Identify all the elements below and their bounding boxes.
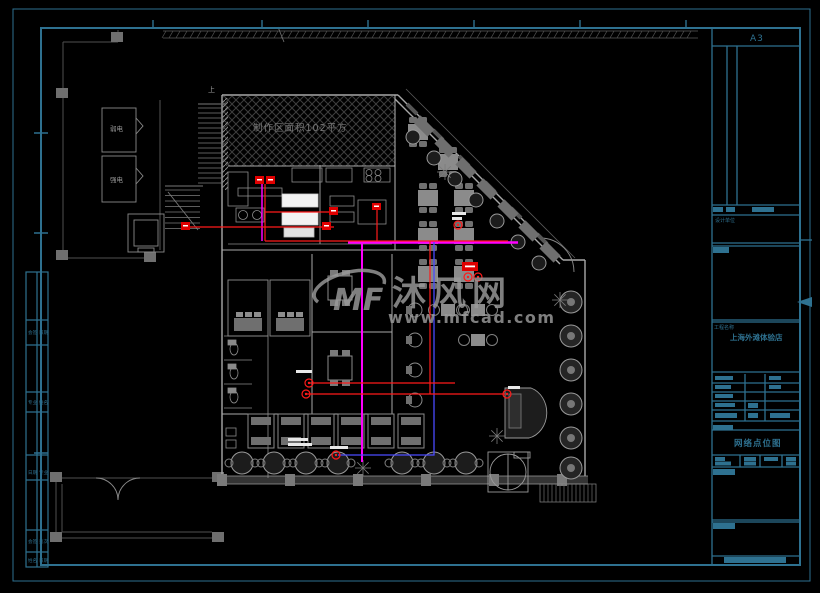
table-4seat [418, 183, 438, 213]
canopy-tick [190, 31, 194, 38]
booth [398, 414, 424, 448]
column [353, 474, 363, 486]
canopy-tick [680, 31, 684, 38]
canopy-tick [218, 31, 222, 38]
canopy-tick [617, 31, 621, 38]
chair [429, 183, 437, 189]
canopy-tick [603, 31, 607, 38]
canopy-tick [372, 31, 376, 38]
canopy-tick [309, 31, 313, 38]
table-center [567, 366, 575, 374]
strip-cell-label: 姓名 [28, 557, 37, 564]
canopy-tick [526, 31, 530, 38]
canopy-tick [393, 31, 397, 38]
booth [248, 414, 274, 448]
canopy-tick [183, 31, 187, 38]
strip-cell-label: 日期 [39, 558, 48, 564]
canopy-tick [659, 31, 663, 38]
entry-steps [540, 484, 596, 502]
plant-leaf [554, 300, 560, 306]
room-table [328, 356, 352, 380]
table [427, 151, 441, 165]
chair [429, 207, 437, 213]
plant-leaf [491, 430, 497, 436]
canopy-tick [239, 31, 243, 38]
plant-leaf [363, 468, 369, 474]
chair [465, 221, 473, 227]
strip-cell-label: 页次 [39, 538, 48, 545]
drawing-title: 网络点位图 [734, 438, 782, 449]
booth [368, 414, 394, 448]
booth [338, 414, 364, 448]
title-block-filled-cells [713, 207, 796, 563]
booth-seat [341, 417, 361, 425]
chair [419, 245, 427, 251]
diagonal-booth [532, 241, 561, 270]
plant-leaf [497, 430, 503, 436]
canopy-tick [484, 31, 488, 38]
strip-cell-label: 会签 [28, 329, 37, 336]
canopy-tick [260, 31, 264, 38]
canopy-tick [225, 31, 229, 38]
double-door-arc [96, 478, 140, 500]
canopy-tick [421, 31, 425, 38]
booth-seat [281, 417, 301, 425]
table [471, 334, 485, 346]
canopy-tick [568, 31, 572, 38]
table [469, 193, 483, 207]
canopy-tick [582, 31, 586, 38]
stairs-up-label: 上 [208, 85, 215, 94]
marker-dot [457, 224, 459, 226]
chair [465, 245, 473, 251]
chair [455, 245, 463, 251]
chair [419, 183, 427, 189]
booth-seat [311, 437, 331, 445]
chair [330, 350, 338, 356]
booth-seat [251, 437, 271, 445]
watermark-logo-text: MF [333, 283, 384, 318]
wall-pocket [406, 103, 419, 116]
canopy-tick [631, 31, 635, 38]
table [231, 452, 253, 474]
booth-seat [371, 417, 391, 425]
canopy-tick [498, 31, 502, 38]
counter-seat [406, 393, 422, 407]
canopy-tick [624, 31, 628, 38]
canopy-tick [316, 31, 320, 38]
canopy-tick [463, 31, 467, 38]
round-table [449, 452, 483, 474]
canopy-tick [687, 31, 691, 38]
table [532, 256, 546, 270]
watermark-url: www.mfcad.com [388, 308, 556, 327]
kitchen-equipment [228, 168, 392, 244]
canopy-tick [470, 31, 474, 38]
chair [419, 207, 427, 213]
table-center [567, 298, 575, 306]
canopy-tick [253, 31, 257, 38]
title-block [712, 28, 812, 565]
round-table [560, 359, 582, 381]
table [406, 130, 420, 144]
canopy-tick [323, 31, 327, 38]
canopy-tick [330, 31, 334, 38]
canopy-tick [561, 31, 565, 38]
canopy-tick [442, 31, 446, 38]
chair [487, 335, 498, 346]
canopy-tick [519, 31, 523, 38]
canopy-tick [505, 31, 509, 38]
columns-exterior [50, 32, 224, 542]
booth-seat [401, 417, 421, 425]
plant [355, 460, 371, 476]
canopy-tick [295, 31, 299, 38]
room-weak-power-label: 弱电 [110, 124, 124, 133]
canopy-tick [246, 31, 250, 38]
canopy-tick [414, 31, 418, 38]
project-name-label: 工程名称 [714, 324, 734, 331]
chair [342, 350, 350, 356]
canopy-tick [652, 31, 656, 38]
chair [465, 207, 473, 213]
canopy-tick [169, 31, 173, 38]
plant-leaf [357, 462, 363, 468]
round-table [560, 325, 582, 347]
round-table [560, 291, 582, 313]
grand-piano [505, 388, 547, 458]
canopy-tick [400, 31, 404, 38]
seat [406, 366, 412, 374]
booth [308, 414, 334, 448]
canopy-tick [428, 31, 432, 38]
chair [429, 221, 437, 227]
canopy-tick [344, 31, 348, 38]
column [217, 474, 227, 486]
canopy-tick [302, 31, 306, 38]
canopy-tick [267, 31, 271, 38]
canopy-tick [540, 31, 544, 38]
canopy-tick [575, 31, 579, 38]
table [263, 452, 285, 474]
chair [419, 141, 427, 147]
canopy-tick [435, 31, 439, 38]
canopy-tick [547, 31, 551, 38]
plant [437, 164, 453, 180]
canopy-tick [673, 31, 677, 38]
canopy-tick [379, 31, 383, 38]
table [418, 190, 438, 206]
chair [465, 183, 473, 189]
table-center [567, 400, 575, 408]
plant-leaf [491, 436, 497, 442]
canopy-tick [533, 31, 537, 38]
strip-cell-label: 专业 [39, 469, 48, 476]
column [421, 474, 431, 486]
seat [406, 396, 412, 404]
canopy-tick [197, 31, 201, 38]
sheet-size-label: A3 [750, 34, 764, 44]
canopy-tick [456, 31, 460, 38]
canopy-tick [176, 31, 180, 38]
counter-seat [406, 363, 422, 377]
booth [278, 414, 304, 448]
round-table [560, 457, 582, 479]
canopy-tick [288, 31, 292, 38]
column [285, 474, 295, 486]
canopy-tick [337, 31, 341, 38]
annex [102, 98, 228, 252]
diagonal-booth [511, 220, 540, 249]
canopy-tick [232, 31, 236, 38]
site-outline [56, 30, 218, 538]
round-table [289, 452, 323, 474]
canopy-tick [449, 31, 453, 38]
table-center [567, 464, 575, 472]
canopy-tick [162, 31, 166, 38]
canopy-tick [386, 31, 390, 38]
canopy-tick [589, 31, 593, 38]
left-strip-labels: 会签 日期 专业 姓名 日期 专业 会签 页次 姓名 日期 [28, 329, 48, 564]
round-table [225, 452, 259, 474]
canopy-tick [358, 31, 362, 38]
canopy-tick [351, 31, 355, 38]
chair [455, 259, 463, 265]
chair [419, 259, 427, 265]
canopy-tick [477, 31, 481, 38]
canopy-tick [512, 31, 516, 38]
canopy-tick [666, 31, 670, 38]
strip-cell-label: 会签 [28, 538, 37, 545]
counter-seat [406, 333, 422, 347]
round-table [257, 452, 291, 474]
canopy-tick [491, 31, 495, 38]
canopy-tick [274, 31, 278, 38]
diagonal-booth [490, 199, 519, 228]
marker-dot [305, 393, 307, 395]
table [490, 214, 504, 228]
canopy-tick [610, 31, 614, 38]
strip-cell-label: 专业 [28, 399, 37, 406]
canopy-tick [596, 31, 600, 38]
project-name: 上海外滩体验店 [730, 332, 783, 342]
table [448, 172, 462, 186]
marker-dot [506, 393, 508, 395]
booth-seat [251, 417, 271, 425]
booth-seat [401, 437, 421, 445]
round-table [560, 427, 582, 449]
booth-seat [311, 417, 331, 425]
drawing-sheet: 制作区面积102平方 [0, 0, 820, 593]
plant-leaf [357, 468, 363, 474]
round-table [560, 393, 582, 415]
canopy-tick [645, 31, 649, 38]
plant [552, 292, 568, 308]
bottom-wall [217, 474, 588, 486]
plant-leaf [363, 462, 369, 468]
chair [459, 335, 470, 346]
table-4seat [418, 221, 438, 251]
table [455, 452, 477, 474]
canopy-tick [554, 31, 558, 38]
strip-cell-label: 日期 [39, 330, 48, 336]
booth-seat [371, 437, 391, 445]
canopy-strip [162, 27, 698, 42]
watermark: MF 沐风网 www.mfcad.com [314, 271, 555, 327]
canopy-tick [204, 31, 208, 38]
seat [406, 336, 412, 344]
table-center [567, 434, 575, 442]
strip-cell-label: 姓名 [39, 399, 48, 406]
prep-area-label: 制作区面积102平方 [253, 122, 348, 134]
annotation-text-bars [288, 212, 520, 449]
private-rooms [228, 280, 310, 336]
left-signature-strip [26, 272, 48, 567]
marker-dot [335, 454, 337, 456]
booth-seat [341, 437, 361, 445]
cad-viewport: 制作区面积102平方 [0, 0, 820, 593]
marker-dot [308, 382, 310, 384]
design-unit-label: 设计单位 [715, 217, 735, 224]
canopy-tick [638, 31, 642, 38]
table-center [567, 332, 575, 340]
table [295, 452, 317, 474]
plant-leaf [554, 294, 560, 300]
strip-cell-label: 日期 [28, 470, 37, 476]
chair [419, 221, 427, 227]
sofa-pair [459, 334, 498, 346]
room-strong-power-label: 强电 [110, 175, 124, 184]
canopy-tick [407, 31, 411, 38]
canopy-tick [365, 31, 369, 38]
plant [489, 428, 505, 444]
plant-leaf [497, 436, 503, 442]
canopy-tick [211, 31, 215, 38]
